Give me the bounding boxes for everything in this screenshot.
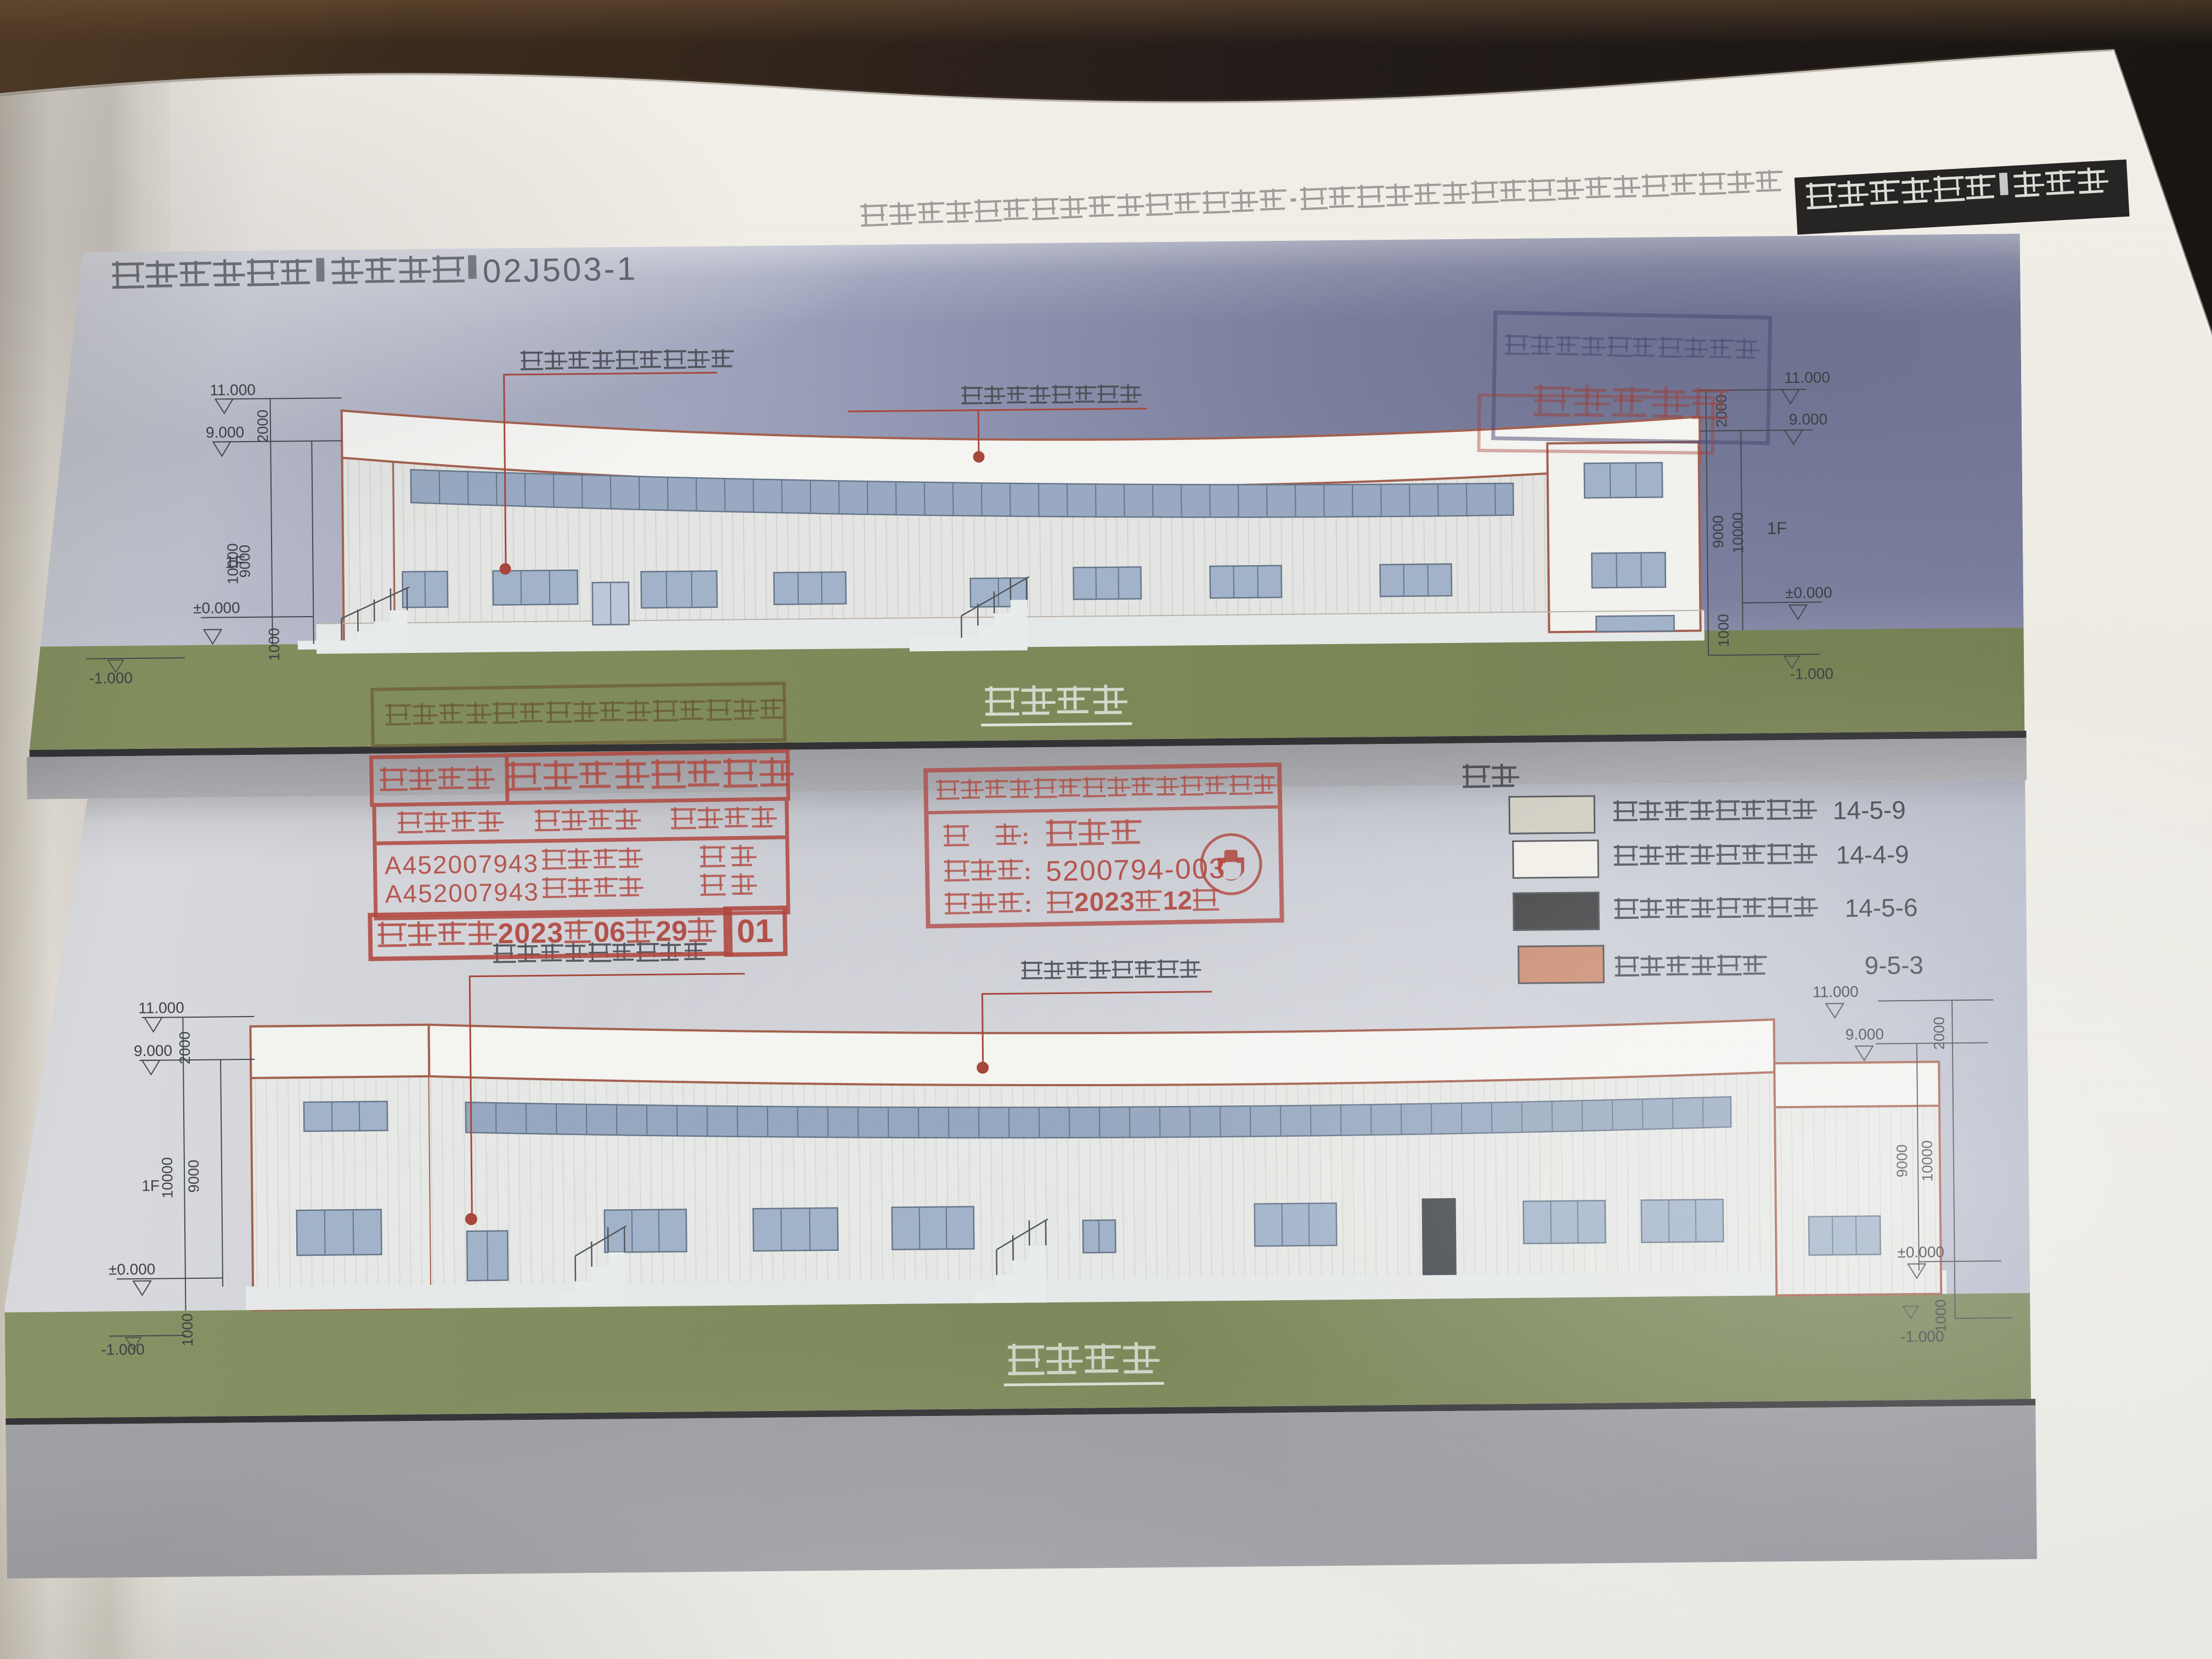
svg-text:1000: 1000 xyxy=(1715,614,1732,647)
svg-text:1000: 1000 xyxy=(179,1313,196,1346)
svg-text:11.000: 11.000 xyxy=(1784,369,1830,386)
svg-text:2000: 2000 xyxy=(255,410,272,443)
svg-text:1F: 1F xyxy=(1767,518,1787,538)
svg-text:-1.000: -1.000 xyxy=(101,1341,145,1358)
svg-text:9.000: 9.000 xyxy=(1846,1025,1884,1043)
svg-text:±0.000: ±0.000 xyxy=(193,599,240,617)
svg-text:-1.000: -1.000 xyxy=(89,669,133,687)
svg-text:10000: 10000 xyxy=(159,1157,176,1198)
svg-text:±0.000: ±0.000 xyxy=(1785,584,1832,601)
svg-text:10000: 10000 xyxy=(1730,512,1747,554)
svg-text:2000: 2000 xyxy=(1931,1017,1948,1049)
svg-text:11.000: 11.000 xyxy=(1813,983,1859,1001)
svg-text:1F: 1F xyxy=(2012,1150,2013,1167)
svg-text:1F: 1F xyxy=(142,1177,160,1194)
svg-text:±0.000: ±0.000 xyxy=(109,1261,156,1278)
svg-text:9.000: 9.000 xyxy=(134,1042,172,1059)
svg-text:11.000: 11.000 xyxy=(138,999,184,1017)
svg-text:±0.000: ±0.000 xyxy=(1897,1243,1944,1261)
svg-text:11.000: 11.000 xyxy=(210,381,256,399)
svg-text:9.000: 9.000 xyxy=(206,424,244,441)
svg-text:1000: 1000 xyxy=(1932,1299,1949,1332)
svg-text:9000: 9000 xyxy=(1894,1144,1911,1177)
svg-text:9000: 9000 xyxy=(185,1160,202,1193)
svg-text:1000: 1000 xyxy=(266,628,283,661)
svg-text:2000: 2000 xyxy=(177,1031,194,1064)
svg-text:9.000: 9.000 xyxy=(1789,410,1827,428)
svg-text:10000: 10000 xyxy=(1919,1140,1936,1181)
svg-text:-1.000: -1.000 xyxy=(1790,665,1833,682)
svg-text:9000: 9000 xyxy=(236,545,253,578)
svg-text:9000: 9000 xyxy=(1710,515,1727,548)
